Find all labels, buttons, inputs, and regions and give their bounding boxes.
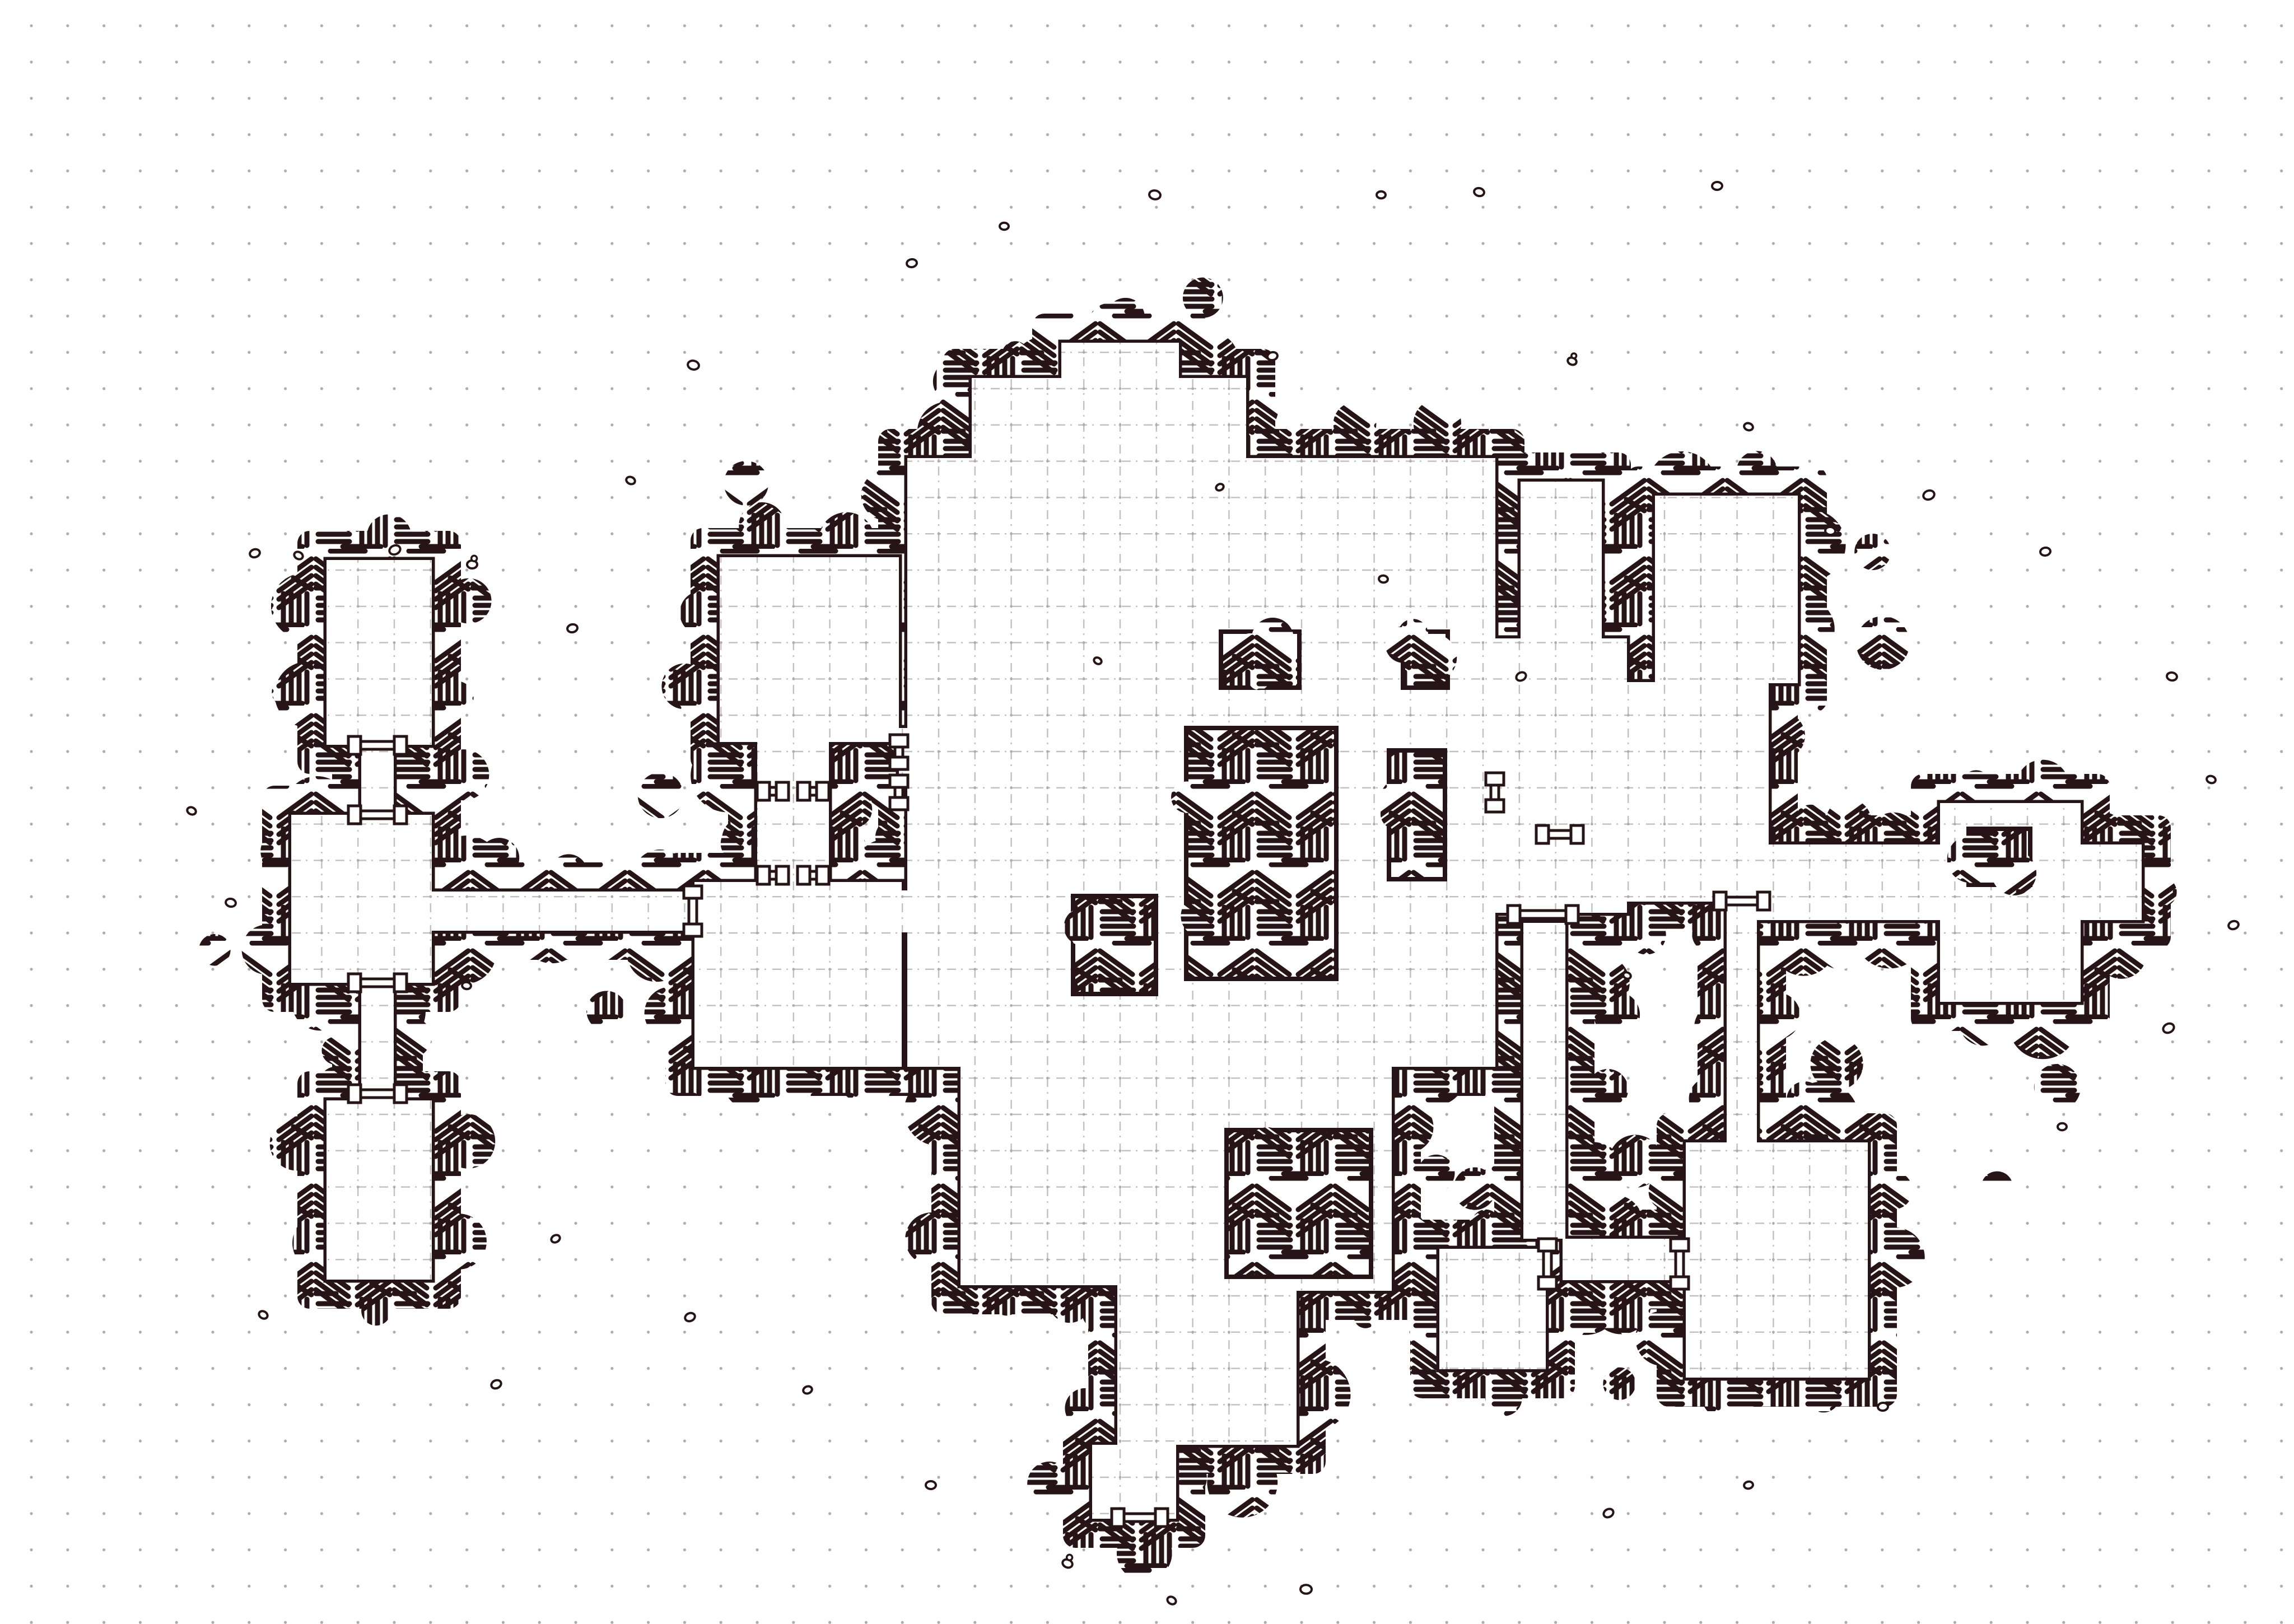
floor-lattice-dot: [2062, 895, 2065, 898]
wall-blob: [1485, 1379, 1522, 1416]
floor-lattice-dot: [1191, 569, 1194, 572]
floor-lattice-dot: [1083, 569, 1085, 572]
wall-blob: [1692, 918, 1726, 951]
wall-blob: [1117, 1525, 1172, 1581]
floor-lattice-dot: [1373, 823, 1376, 825]
door-post: [394, 806, 407, 824]
floor-lattice-dot: [1083, 786, 1085, 789]
floor-hall-lobe-left: [961, 1067, 1117, 1285]
floor-lattice-dot: [1446, 1295, 1448, 1298]
pillar-hall-center: [1186, 728, 1336, 979]
wall-blob: [739, 502, 785, 549]
floor-lattice-dot: [1482, 750, 1485, 753]
floor-room-c: [327, 1100, 432, 1280]
floor-lattice-dot: [1554, 569, 1557, 572]
floor-lattice-dot: [1010, 1113, 1013, 1116]
door-bar: [1546, 830, 1573, 838]
floor-lattice-dot: [502, 895, 505, 898]
pillar-room-j-blob: [1947, 836, 1995, 883]
floor-lattice-dot: [1699, 786, 1702, 789]
floor-lattice-dot: [973, 1258, 976, 1261]
pillar-hall-center-blob: [1181, 895, 1221, 936]
floor-lattice-dot: [1554, 533, 1557, 535]
floor-lattice-dot: [938, 641, 940, 644]
floor-lattice-dot: [828, 968, 831, 970]
floor-lattice-dot: [1663, 750, 1666, 753]
floor-lattice-dot: [1155, 351, 1158, 354]
floor-lattice-dot: [1046, 496, 1049, 499]
floor-lattice-dot: [1446, 496, 1448, 499]
floor-lattice-dot: [1191, 1440, 1194, 1443]
floor-lattice-dot: [1699, 496, 1702, 499]
floor-lattice-dot: [1409, 605, 1412, 608]
pillar-hall-right-blob: [1381, 799, 1411, 829]
floor-lattice-dot: [1119, 1258, 1122, 1261]
pebble: [1300, 1585, 1312, 1594]
wall-blob: [242, 925, 292, 974]
floor-lattice-dot: [1446, 569, 1448, 572]
floor-lattice-dot: [1591, 569, 1593, 572]
wall-blob: [993, 1289, 1020, 1316]
floor-lattice-dot: [1119, 569, 1122, 572]
floor-lattice-dot: [1482, 968, 1485, 970]
floor-lattice-dot: [429, 641, 432, 644]
floor-lattice-dot: [1772, 1149, 1775, 1152]
floor-arm-east-stub: [2080, 844, 2142, 920]
wall-blob: [1794, 805, 1827, 837]
floor-lattice-dot: [938, 1040, 940, 1043]
floor-lattice-dot: [357, 968, 360, 970]
floor-lattice-dot: [1446, 1004, 1448, 1007]
floor-lattice-dot: [1119, 605, 1122, 608]
floor-lattice-dot: [1300, 1077, 1303, 1080]
floor-lattice-dot: [1228, 1077, 1230, 1080]
floor-lattice-dot: [1046, 1258, 1049, 1261]
floor-lattice-dot: [1155, 1149, 1158, 1152]
floor-lattice-dot: [1990, 823, 1993, 825]
floor-lattice-dot: [1736, 1113, 1738, 1116]
floor-lattice-dot: [1845, 1222, 1848, 1225]
floor-lattice-dot: [938, 895, 940, 898]
floor-lattice-dot: [1264, 1040, 1267, 1043]
floor-lattice-dot: [1228, 460, 1230, 463]
floor-lattice-dot: [1808, 1367, 1811, 1370]
floor-lattice-dot: [1300, 533, 1303, 535]
wall-blob: [1875, 1172, 1913, 1210]
floor-lattice-dot: [1119, 351, 1122, 354]
floor-lattice-dot: [1627, 750, 1630, 753]
floor-lattice-dot: [357, 932, 360, 935]
wall-blob: [1414, 399, 1461, 447]
floor-lattice-dot: [320, 968, 323, 970]
floor-lattice-dot: [1482, 895, 1485, 898]
floor-lattice-dot: [1336, 1113, 1339, 1116]
floor-lattice-dot: [1336, 714, 1339, 717]
floor-lattice-dot: [1554, 1040, 1557, 1043]
floor-lattice-dot: [1736, 496, 1738, 499]
floor-lattice-dot: [1264, 1077, 1267, 1080]
floor-lattice-dot: [1010, 1040, 1013, 1043]
floor-lattice-dot: [320, 895, 323, 898]
floor-lattice-dot: [1083, 605, 1085, 608]
wall-blob: [1626, 915, 1666, 954]
floor-lattice-dot: [1736, 1004, 1738, 1007]
floor-lattice-dot: [1591, 605, 1593, 608]
floor-lattice-dot: [1010, 605, 1013, 608]
floor-lattice-dot: [1554, 786, 1557, 789]
floor-lattice-dot: [1845, 1331, 1848, 1333]
floor-lattice-dot: [1482, 569, 1485, 572]
floor-lattice-dot: [2062, 859, 2065, 862]
floor-lattice-dot: [1446, 1331, 1448, 1333]
wall-blob: [1959, 998, 2006, 1046]
floor-lattice-dot: [1046, 605, 1049, 608]
floor-lattice-dot: [1010, 496, 1013, 499]
floor-lattice-dot: [1191, 1077, 1194, 1080]
floor-lattice-dot: [429, 932, 432, 935]
floor-lattice-dot: [429, 1113, 432, 1116]
pillar-hall-west-blob: [1115, 931, 1147, 963]
floor-lattice-dot: [1300, 1113, 1303, 1116]
floor-lattice-dot: [1663, 714, 1666, 717]
door-post: [394, 736, 407, 754]
pebble: [906, 259, 917, 268]
floor-lattice-dot: [1482, 1258, 1485, 1261]
floor-lattice-dot: [429, 968, 432, 970]
floor-lattice-dot: [1736, 823, 1738, 825]
door-post: [798, 866, 810, 884]
floor-lattice-dot: [1010, 1222, 1013, 1225]
floor-lattice-dot: [1736, 714, 1738, 717]
floor-lattice-dot: [1373, 1004, 1376, 1007]
floor-lattice-dot: [393, 1186, 396, 1188]
floor-lattice-dot: [393, 678, 396, 680]
floor-lattice-dot: [1083, 1040, 1085, 1043]
floor-lattice-dot: [1264, 1440, 1267, 1443]
floor-lattice-dot: [792, 932, 795, 935]
floor-lattice-dot: [1699, 605, 1702, 608]
door-post: [1671, 1239, 1689, 1251]
floor-lattice-dot: [1554, 496, 1557, 499]
floor-lattice-dot: [1409, 569, 1412, 572]
floor-lattice-dot: [538, 895, 541, 898]
floor-lattice-dot: [1591, 895, 1593, 898]
floor-lattice-dot: [357, 678, 360, 680]
door-post: [1486, 800, 1504, 812]
floor-lattice-dot: [1772, 1295, 1775, 1298]
door-bar: [1544, 1249, 1551, 1279]
pebble: [1877, 1402, 1888, 1411]
floor-lattice-dot: [1627, 1258, 1630, 1261]
floor-lattice-dot: [1446, 895, 1448, 898]
floor-lattice-dot: [1119, 1186, 1122, 1188]
floor-lattice-dot: [1482, 1004, 1485, 1007]
floor-lattice-dot: [973, 1113, 976, 1116]
wall-blob: [1895, 935, 1925, 965]
floor-lattice-dot: [973, 605, 976, 608]
floor-lattice-dot: [1010, 533, 1013, 535]
floor-lattice-dot: [1083, 1149, 1085, 1152]
floor-lattice-dot: [720, 932, 722, 935]
floor-lattice-dot: [357, 569, 360, 572]
floor-lattice-dot: [1264, 533, 1267, 535]
floor-lattice-dot: [1772, 641, 1775, 644]
floor-lattice-dot: [792, 750, 795, 753]
floor-lattice-dot: [1083, 423, 1085, 426]
floor-lattice-dot: [1010, 678, 1013, 680]
floor-lattice-dot: [1699, 750, 1702, 753]
door-post: [1571, 825, 1583, 843]
floor-lattice-dot: [792, 641, 795, 644]
floor-lattice-dot: [1046, 388, 1049, 390]
floor-lattice-dot: [1591, 823, 1593, 825]
floor-lattice-dot: [1010, 1004, 1013, 1007]
wall-clump: [1354, 1305, 1377, 1328]
floor-lattice-dot: [2062, 823, 2065, 825]
floor-lattice-dot: [1482, 823, 1485, 825]
floor-lattice-dot: [1046, 968, 1049, 970]
floor-lattice-dot: [973, 968, 976, 970]
floor-lattice-dot: [1699, 533, 1702, 535]
pebble: [1267, 351, 1279, 361]
floor-lattice-dot: [792, 714, 795, 717]
floor-lattice-dot: [1953, 823, 1956, 825]
floor-lattice-dot: [357, 714, 360, 717]
door-bar: [1724, 897, 1760, 905]
floor-lattice-dot: [1155, 1077, 1158, 1080]
floor-lattice-dot: [973, 1040, 976, 1043]
floor-lattice-dot: [1699, 1186, 1702, 1188]
floor-lattice-dot: [1046, 460, 1049, 463]
pebble: [1474, 187, 1485, 197]
floor-lattice-dot: [465, 895, 468, 898]
floor-lattice-dot: [1155, 1040, 1158, 1043]
floor-lattice-dot: [756, 932, 759, 935]
floor-lattice-dot: [938, 605, 940, 608]
floor-lattice-dot: [1300, 569, 1303, 572]
pebble-small: [472, 556, 477, 561]
floor-room-d: [720, 557, 899, 742]
floor-lattice-dot: [1518, 641, 1521, 644]
floor-lattice-dot: [1264, 714, 1267, 717]
floor-lattice-dot: [1119, 859, 1122, 862]
floor-lattice-dot: [901, 895, 904, 898]
floor-lattice-dot: [973, 1186, 976, 1188]
floor-lattice-dot: [1736, 786, 1738, 789]
door-bar: [1518, 911, 1568, 918]
floor-lattice-dot: [1482, 1295, 1485, 1298]
floor-lattice-dot: [393, 968, 396, 970]
door-post: [348, 736, 361, 754]
floor-lattice-dot: [1736, 678, 1738, 680]
floor-lattice-dot: [1264, 1295, 1267, 1298]
floor-lattice-dot: [1191, 1040, 1194, 1043]
floor-lattice-dot: [1264, 1331, 1267, 1333]
floor-lattice-dot: [1446, 460, 1448, 463]
floor-lattice-dot: [429, 714, 432, 717]
floor-lattice-dot: [1409, 460, 1412, 463]
floor-lattice-dot: [1155, 1476, 1158, 1479]
door-post: [817, 782, 829, 800]
floor-lattice-dot: [1881, 895, 1883, 898]
wall-clump: [1815, 919, 1866, 969]
wall-blob: [450, 931, 488, 969]
floor-lattice-dot: [1736, 1258, 1738, 1261]
floor-lattice-dot: [1300, 1040, 1303, 1043]
floor-room-e: [694, 882, 902, 1067]
floor-lattice-dot: [1155, 460, 1158, 463]
floor-lattice-dot: [1845, 859, 1848, 862]
floor-lattice-dot: [1373, 750, 1376, 753]
floor-lattice-dot: [2062, 968, 2065, 970]
door-post: [1486, 773, 1504, 785]
floor-lattice-dot: [610, 895, 613, 898]
floor-lattice-dot: [1591, 1258, 1593, 1261]
floor-lattice-dot: [1010, 423, 1013, 426]
floor-lattice-dot: [1010, 786, 1013, 789]
floor-lattice-dot: [792, 678, 795, 680]
pebble: [567, 623, 579, 633]
floor-lattice-dot: [1046, 1004, 1049, 1007]
floor-lattice-dot: [1228, 388, 1230, 390]
floor-lattice-dot: [756, 569, 759, 572]
floor-lattice-dot: [1663, 895, 1666, 898]
floor-lattice-dot: [720, 714, 722, 717]
floor-lattice-dot: [429, 678, 432, 680]
floor-lattice-dot: [1373, 859, 1376, 862]
floor-lattice-dot: [1046, 641, 1049, 644]
floor-lattice-dot: [1736, 533, 1738, 535]
floor-lattice-dot: [1990, 895, 1993, 898]
floor-lattice-dot: [1736, 605, 1738, 608]
floor-lattice-dot: [1010, 968, 1013, 970]
floor-lattice-dot: [1300, 460, 1303, 463]
wall-blob: [1807, 1380, 1840, 1412]
floor-lattice-dot: [1409, 1040, 1412, 1043]
floor-lattice-dot: [720, 678, 722, 680]
pebble: [1149, 190, 1161, 200]
pillar-hall-center-blob: [1171, 781, 1202, 813]
floor-lattice-dot: [1409, 1004, 1412, 1007]
floor-lattice-dot: [1663, 859, 1666, 862]
floor-lattice-dot: [1155, 1295, 1158, 1298]
floor-lattice-dot: [1772, 605, 1775, 608]
floor-lattice-dot: [828, 605, 831, 608]
floor-lattice-dot: [1228, 1004, 1230, 1007]
floor-lattice-dot: [1155, 786, 1158, 789]
floor-lattice-dot: [1446, 714, 1448, 717]
floor-lattice-dot: [1336, 533, 1339, 535]
floor-lattice-dot: [1591, 714, 1593, 717]
wall-clump: [1854, 534, 1891, 570]
floor-lattice-dot: [1191, 388, 1194, 390]
floor-lattice-dot: [792, 786, 795, 789]
floor-vestibule-south: [1507, 842, 1579, 909]
floor-lattice-dot: [1663, 569, 1666, 572]
floor-lattice-dot: [1119, 750, 1122, 753]
floor-lattice-dot: [1482, 605, 1485, 608]
floor-lattice-dot: [1808, 1186, 1811, 1188]
floor-lattice-dot: [1119, 1476, 1122, 1479]
floor-lattice-dot: [792, 859, 795, 862]
door-post: [1538, 1277, 1556, 1289]
floor-lattice-dot: [1446, 968, 1448, 970]
floor-lattice-dot: [1772, 1331, 1775, 1333]
floor-lattice-dot: [1046, 823, 1049, 825]
floor-lattice-dot: [938, 859, 940, 862]
floor-lattice-dot: [828, 932, 831, 935]
floor-lattice-dot: [1518, 1258, 1521, 1261]
floor-lattice-dot: [1373, 895, 1376, 898]
floor-lattice-dot: [393, 714, 396, 717]
wall-blob: [270, 1116, 324, 1170]
floor-lattice-dot: [1191, 1222, 1194, 1225]
floor-lattice-dot: [865, 932, 868, 935]
floor-lattice-dot: [720, 1040, 722, 1043]
floor-lattice-dot: [1191, 533, 1194, 535]
floor-lattice-dot: [1228, 533, 1230, 535]
floor-lattice-dot: [1736, 1186, 1738, 1188]
door-post: [684, 924, 702, 936]
floor-lattice-dot: [320, 823, 323, 825]
wall-clump: [272, 677, 302, 707]
wall-clump: [638, 772, 684, 818]
floor-lattice-dot: [1482, 533, 1485, 535]
floor-lattice-dot: [1736, 932, 1738, 935]
floor-lattice-dot: [2026, 823, 2029, 825]
wall-clump: [586, 991, 626, 1030]
floor-lattice-dot: [647, 895, 650, 898]
wall-blob: [661, 664, 707, 710]
floor-lattice-dot: [1119, 1113, 1122, 1116]
floor-lattice-dot: [1772, 496, 1775, 499]
wall-blob: [1481, 1164, 1517, 1200]
floor-lattice-dot: [1518, 750, 1521, 753]
floor-lattice-dot: [1917, 895, 1920, 898]
floor-lattice-dot: [1591, 859, 1593, 862]
door-post: [817, 866, 829, 884]
floor-lattice-dot: [828, 641, 831, 644]
floor-lattice-dot: [1591, 641, 1593, 644]
floor-lattice-dot: [1336, 605, 1339, 608]
floor-lattice-dot: [1845, 1295, 1848, 1298]
wall-blob: [1864, 1228, 1925, 1288]
floor-lattice-dot: [973, 569, 976, 572]
wall-blob: [842, 1070, 873, 1101]
floor-lattice-dot: [1808, 859, 1811, 862]
floor-lattice-dot: [429, 1258, 432, 1261]
floor-lattice-dot: [1228, 1367, 1230, 1370]
floor-lattice-dot: [1591, 750, 1593, 753]
floor-lattice-dot: [1336, 496, 1339, 499]
floor-lattice-dot: [393, 569, 396, 572]
floor-lattice-dot: [938, 569, 940, 572]
wall-clump: [1183, 278, 1223, 318]
floor-lattice-dot: [1627, 823, 1630, 825]
floor-corridor-f-south: [1727, 902, 1757, 1142]
floor-lattice-dot: [1808, 1331, 1811, 1333]
floor-lattice-dot: [1772, 895, 1775, 898]
floor-lattice-dot: [1191, 1113, 1194, 1116]
floor-lattice-dot: [1046, 533, 1049, 535]
floor-lattice-dot: [1264, 605, 1267, 608]
floor-lattice-dot: [1699, 569, 1702, 572]
floor-lattice-dot: [1373, 786, 1376, 789]
floor-lattice-dot: [973, 714, 976, 717]
floor-lattice-dot: [720, 968, 722, 970]
floor-lattice-dot: [973, 1222, 976, 1225]
floor-lattice-dot: [1083, 1222, 1085, 1225]
